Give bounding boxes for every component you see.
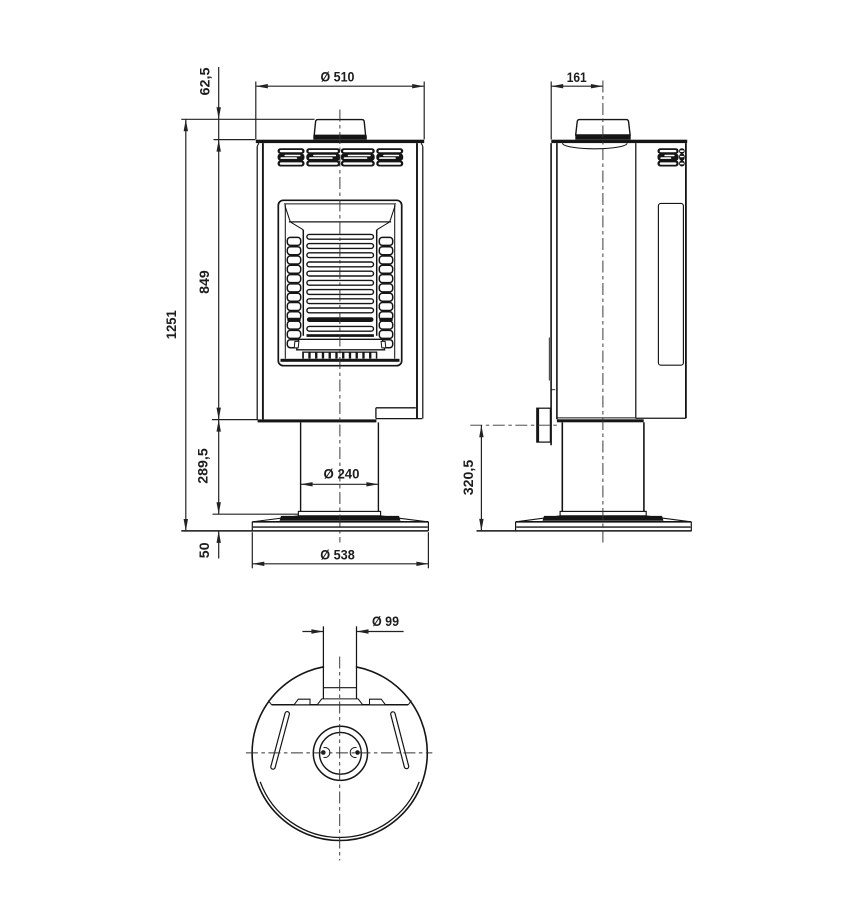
svg-text:320,5: 320,5 bbox=[461, 460, 477, 496]
svg-text:Ø 538: Ø 538 bbox=[320, 548, 355, 564]
svg-text:161: 161 bbox=[567, 70, 587, 86]
svg-text:Ø 99: Ø 99 bbox=[372, 614, 399, 630]
svg-text:62,5: 62,5 bbox=[198, 67, 214, 95]
svg-text:1251: 1251 bbox=[164, 310, 180, 339]
svg-text:Ø 510: Ø 510 bbox=[321, 70, 355, 86]
svg-text:289,5: 289,5 bbox=[196, 448, 212, 484]
svg-text:50: 50 bbox=[197, 542, 213, 558]
svg-text:849: 849 bbox=[197, 270, 213, 294]
svg-text:Ø 240: Ø 240 bbox=[324, 466, 360, 482]
